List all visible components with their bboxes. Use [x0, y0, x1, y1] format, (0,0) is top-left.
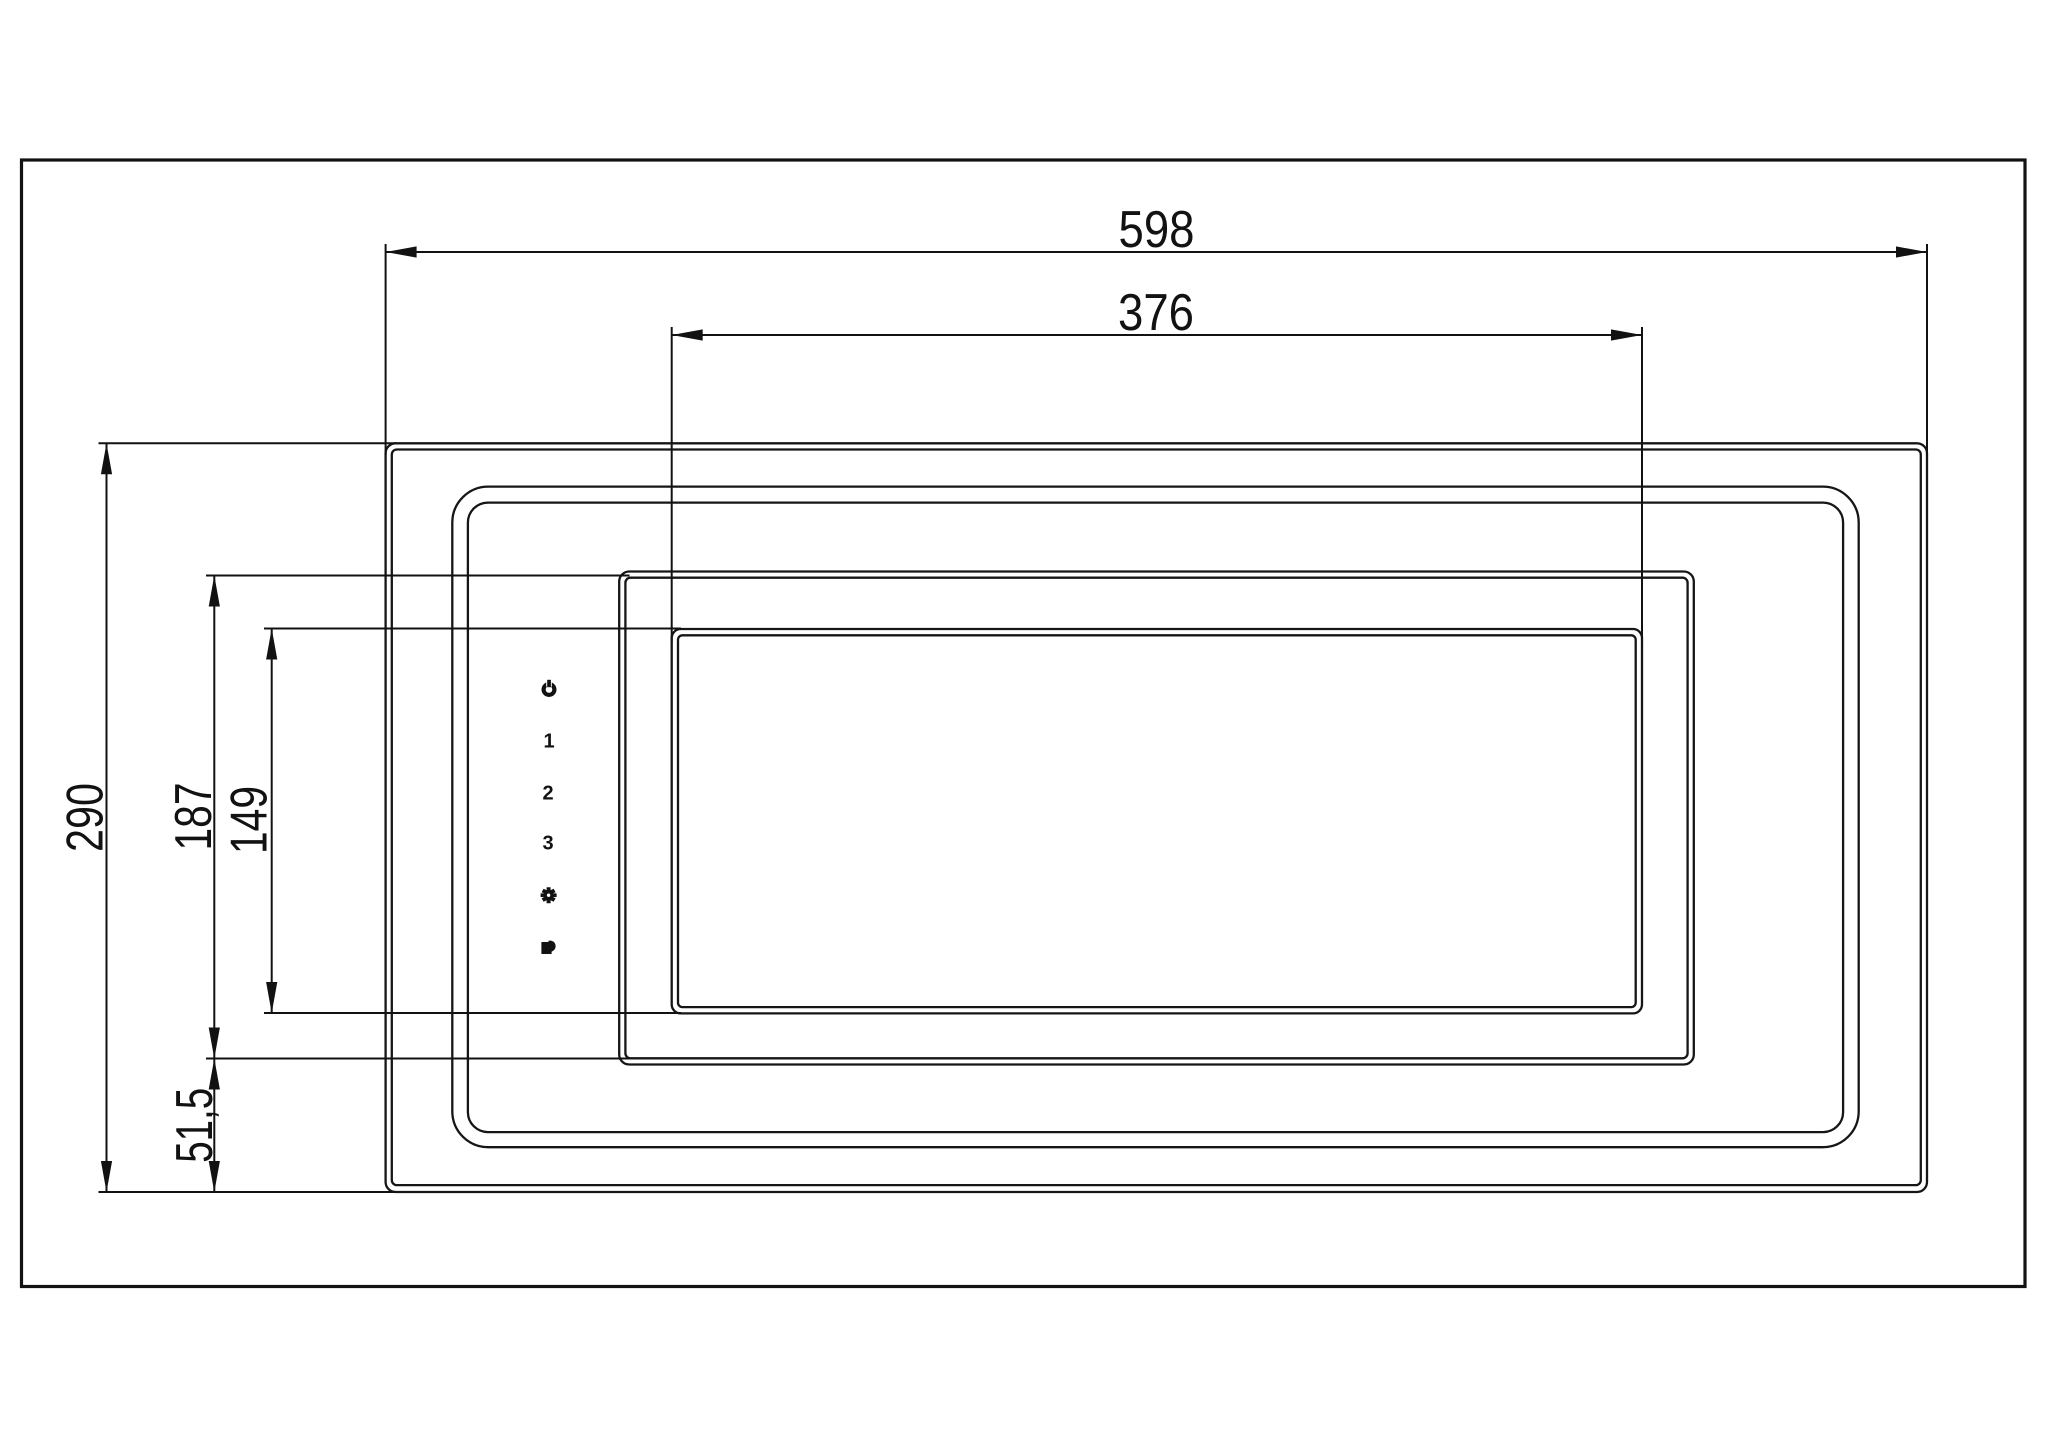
- svg-text:1: 1: [543, 731, 554, 753]
- svg-text:3: 3: [542, 833, 553, 855]
- svg-text:598: 598: [1119, 201, 1195, 259]
- svg-text:51,5: 51,5: [166, 1088, 224, 1163]
- svg-text:376: 376: [1118, 284, 1194, 342]
- svg-text:290: 290: [57, 783, 115, 852]
- svg-text:187: 187: [165, 783, 223, 851]
- svg-text:2: 2: [542, 782, 553, 804]
- svg-text:149: 149: [221, 786, 279, 854]
